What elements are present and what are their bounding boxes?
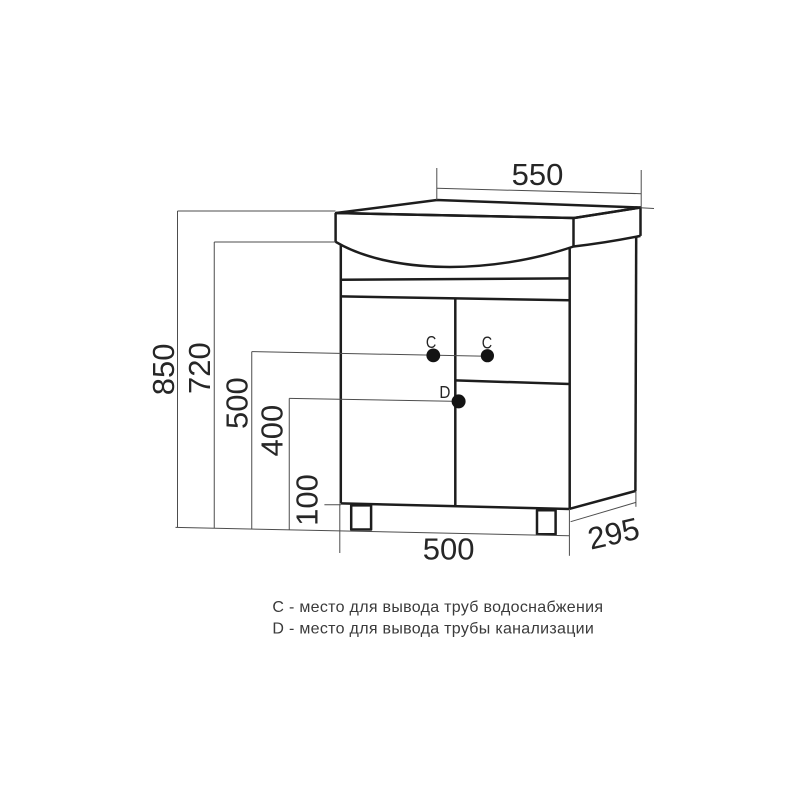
svg-text:D - место для вывода трубы кан: D - место для вывода трубы канализации xyxy=(272,621,594,638)
svg-text:720: 720 xyxy=(182,342,217,394)
svg-text:550: 550 xyxy=(512,157,564,192)
svg-text:C: C xyxy=(482,333,493,353)
svg-text:500: 500 xyxy=(220,377,255,429)
svg-text:C: C xyxy=(426,333,437,353)
svg-text:100: 100 xyxy=(290,474,325,526)
svg-text:D: D xyxy=(439,382,450,402)
svg-text:400: 400 xyxy=(255,405,290,457)
svg-text:850: 850 xyxy=(146,344,181,396)
svg-text:500: 500 xyxy=(423,532,475,567)
svg-text:C - место для вывода труб водо: C - место для вывода труб водоснабжения xyxy=(272,599,603,616)
